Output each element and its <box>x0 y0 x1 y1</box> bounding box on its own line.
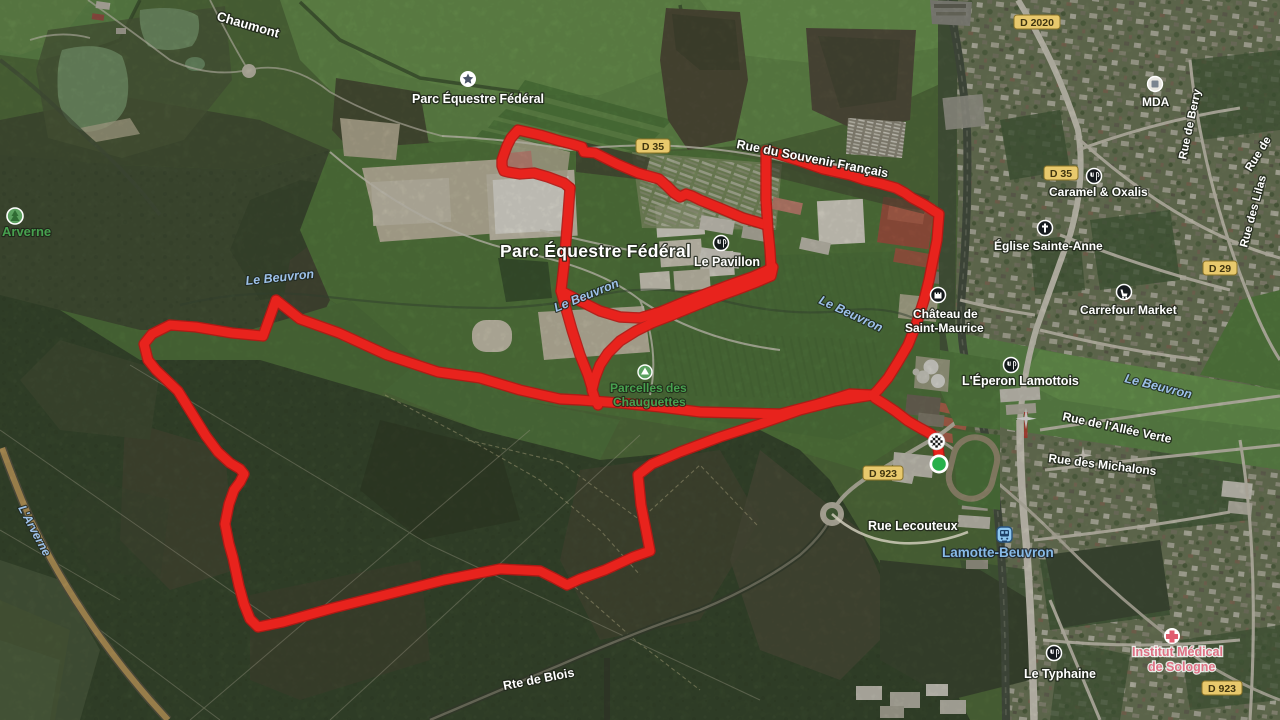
svg-text:D 2020: D 2020 <box>1020 17 1054 29</box>
svg-text:D 29: D 29 <box>1209 263 1231 275</box>
svg-text:de Sologne: de Sologne <box>1148 660 1215 674</box>
svg-text:MDA: MDA <box>1142 95 1170 109</box>
svg-text:D 923: D 923 <box>1208 683 1236 695</box>
svg-text:Caramel & Oxalis: Caramel & Oxalis <box>1049 185 1148 199</box>
svg-text:Église Sainte-Anne: Église Sainte-Anne <box>994 238 1103 253</box>
svg-text:Saint-Maurice: Saint-Maurice <box>905 321 984 335</box>
svg-text:D 35: D 35 <box>642 141 664 153</box>
svg-text:Rue Lecouteux: Rue Lecouteux <box>868 519 958 533</box>
svg-text:Le Pavillon: Le Pavillon <box>694 255 760 269</box>
svg-text:Le Typhaine: Le Typhaine <box>1024 667 1096 681</box>
svg-text:Institut Médical: Institut Médical <box>1132 645 1223 659</box>
svg-text:Parcelles des: Parcelles des <box>610 381 687 395</box>
svg-text:Arverne: Arverne <box>2 224 51 239</box>
svg-text:L'Éperon Lamottois: L'Éperon Lamottois <box>962 373 1079 388</box>
svg-text:D 923: D 923 <box>869 468 897 480</box>
svg-text:Chauguettes: Chauguettes <box>613 395 686 409</box>
svg-text:Château de: Château de <box>913 307 978 321</box>
svg-text:Lamotte-Beuvron: Lamotte-Beuvron <box>942 545 1054 560</box>
svg-text:D 35: D 35 <box>1050 168 1072 180</box>
svg-text:Carrefour Market: Carrefour Market <box>1080 303 1177 317</box>
svg-text:Parc Équestre Fédéral: Parc Équestre Fédéral <box>412 91 544 106</box>
svg-text:Parc Équestre Fédéral: Parc Équestre Fédéral <box>500 240 691 261</box>
